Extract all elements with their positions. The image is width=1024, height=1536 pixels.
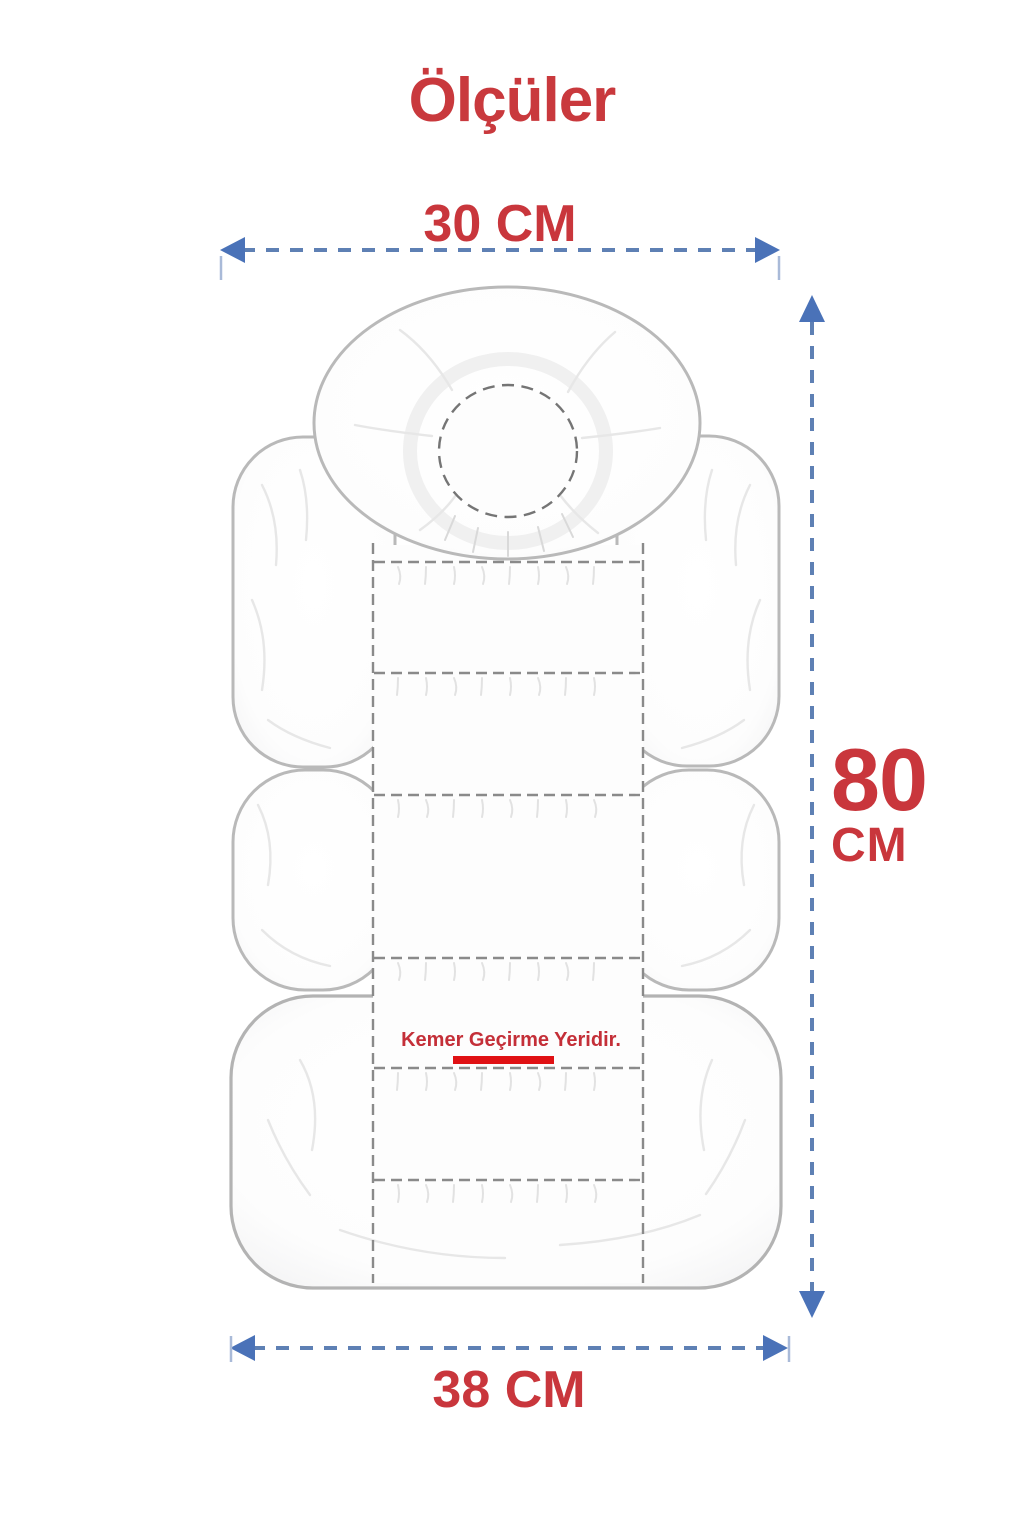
top-width-label: 30 CM bbox=[222, 198, 778, 250]
bottom-arrow-right-head bbox=[763, 1335, 788, 1361]
center-channel bbox=[373, 545, 643, 1283]
bottom-width-label: 38 CM bbox=[230, 1364, 788, 1416]
bottom-arrow-left-head bbox=[230, 1335, 255, 1361]
headrest-circle-seam bbox=[439, 385, 577, 517]
product-dimension-diagram: Ölçüler bbox=[0, 0, 1024, 1536]
bottom-width-arrow bbox=[230, 1335, 789, 1362]
height-arrow bbox=[799, 295, 825, 1318]
height-arrow-bottom-head bbox=[799, 1291, 825, 1318]
belt-note-underline bbox=[453, 1056, 554, 1064]
belt-note-text: Kemer Geçirme Yeridir. bbox=[311, 1029, 711, 1051]
height-label: 80 CM bbox=[831, 742, 927, 870]
height-arrow-top-head bbox=[799, 295, 825, 322]
cushion-illustration bbox=[231, 287, 781, 1288]
bolster-left-middle bbox=[233, 770, 395, 990]
height-value: 80 bbox=[831, 742, 927, 818]
